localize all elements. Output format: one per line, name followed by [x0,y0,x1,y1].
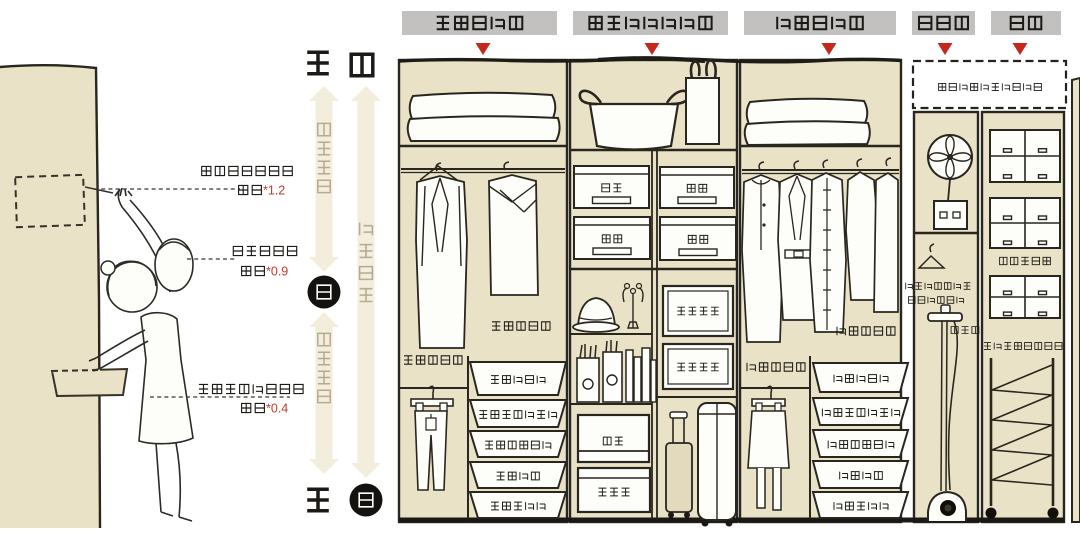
svg-text:*0.9: *0.9 [266,265,288,279]
svg-text:*1.2: *1.2 [263,184,285,198]
svg-text:*0.4: *0.4 [266,402,288,416]
